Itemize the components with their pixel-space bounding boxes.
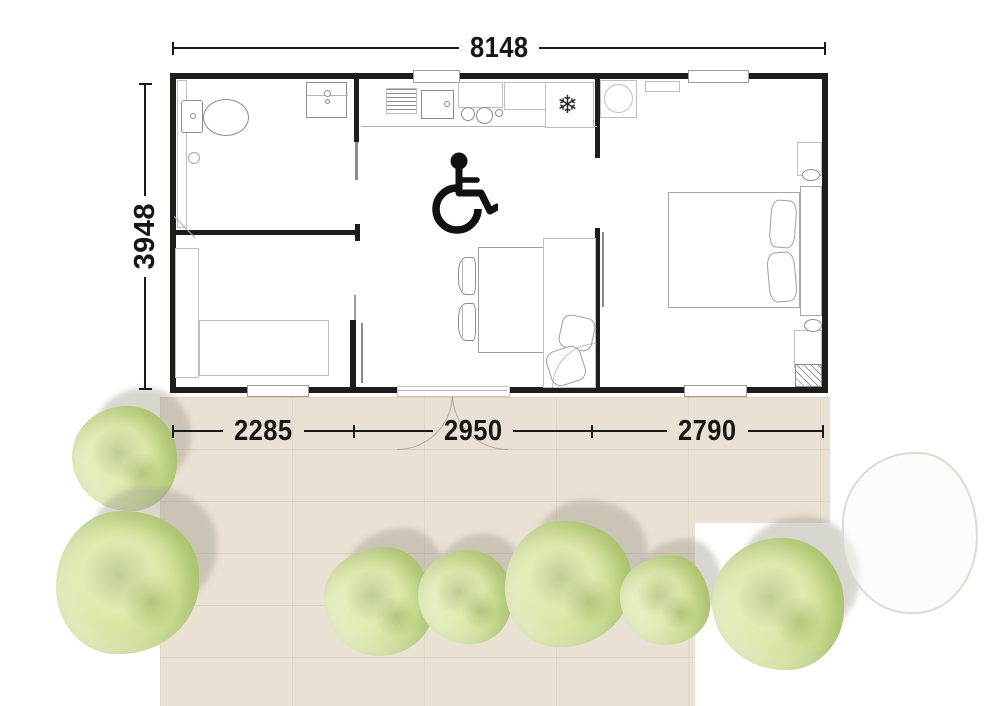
dim-label-segment-2: 2950 — [444, 417, 503, 446]
bedroom1-sliding-door — [602, 232, 604, 307]
wall-bathroom-right — [354, 79, 359, 142]
hob-knob — [495, 109, 503, 117]
bed-pillow-1 — [768, 199, 797, 249]
toilet-paper-holder — [188, 152, 200, 164]
dining-chair-1 — [458, 257, 476, 295]
dim-line — [593, 430, 667, 432]
dim-line — [539, 47, 824, 49]
toilet-flush-button — [190, 113, 196, 119]
wheelchair-icon — [432, 149, 498, 237]
dim-line — [144, 85, 146, 196]
bathroom-sliding-door — [355, 142, 358, 180]
ghost-tree-icon — [842, 452, 978, 614]
water-heater — [604, 84, 633, 113]
hob-burner-2 — [476, 107, 493, 124]
bedroom2-bed-horizontal — [199, 320, 329, 376]
dining-chair-2 — [458, 303, 476, 341]
tree-foliage-shade — [375, 596, 417, 638]
mobile-home-plan: ❄ — [170, 73, 828, 393]
dim-tick — [139, 388, 152, 390]
dimension-segment-2: 2950 — [353, 416, 591, 446]
dining-table — [478, 247, 545, 353]
water-heater-cabinet — [600, 80, 637, 118]
bathroom-vanity — [306, 82, 347, 118]
tree-icon — [418, 544, 518, 644]
dim-line — [174, 430, 223, 432]
wall-right — [822, 73, 828, 393]
tree-icon — [56, 502, 208, 654]
dim-line — [513, 430, 591, 432]
bedroom2-bed-vertical — [175, 248, 199, 378]
wall-bedroom2-right — [350, 320, 356, 387]
dim-label-segment-1: 2285 — [234, 417, 293, 446]
bed-headboard — [800, 186, 822, 316]
dimension-total-width: 8148 — [172, 33, 826, 63]
kitchen-counter-2 — [504, 82, 549, 110]
window-top-kitchen — [413, 70, 460, 83]
hob-burner-1 — [461, 107, 475, 121]
toilet-bowl — [203, 99, 249, 136]
dimension-segment-1: 2285 — [172, 416, 353, 446]
sink-tap — [444, 101, 450, 107]
entrance-door-track — [398, 390, 507, 391]
floor-plan-page: 8148 3948 2285 2950 2790 — [0, 0, 1000, 706]
bedside-rug — [795, 364, 822, 387]
window-top-bedroom — [688, 70, 749, 83]
tree-foliage-shade — [662, 595, 697, 630]
chair-back-line — [462, 307, 463, 337]
tree-foliage-shade — [462, 592, 498, 628]
dimension-total-depth: 3948 — [138, 83, 152, 390]
window-bottom-bedroom2 — [247, 385, 309, 397]
lamp-top — [802, 169, 820, 181]
wall-bathroom-bottom — [176, 230, 358, 235]
snowflake-icon: ❄ — [557, 93, 578, 118]
dim-line — [748, 430, 822, 432]
dim-label-segment-3: 2790 — [678, 417, 737, 446]
tree-icon — [505, 513, 639, 647]
dim-tick — [824, 42, 826, 55]
kitchen-counter-1 — [458, 82, 503, 108]
wall-end-cap — [355, 224, 360, 241]
wall-shelf — [645, 81, 680, 92]
chair-back-line — [462, 261, 463, 291]
nightstand-bottom — [794, 330, 822, 368]
tree-icon — [620, 549, 716, 645]
tree-icon — [712, 530, 852, 670]
tree-foliage-shade — [774, 597, 824, 647]
window-bottom-bedroom1 — [684, 385, 747, 397]
entrance-bay-opening — [397, 386, 510, 397]
kitchen-sink — [421, 90, 454, 119]
vanity-drain — [325, 99, 330, 104]
tree-foliage-shade — [123, 575, 178, 630]
toilet-tank — [181, 100, 203, 133]
dim-line — [174, 47, 459, 49]
dim-tick — [822, 425, 824, 438]
vanity-tap — [324, 90, 331, 97]
bedroom2-door-leaf — [361, 323, 363, 383]
dim-label-total-depth: 3948 — [131, 203, 160, 270]
bed-pillow-2 — [766, 251, 798, 303]
kitchen-drainer — [386, 88, 417, 114]
dim-label-total-width: 8148 — [470, 34, 529, 63]
dim-line — [144, 277, 146, 388]
dim-line — [304, 430, 353, 432]
dimension-segment-3: 2790 — [591, 416, 824, 446]
lamp-bottom — [804, 319, 822, 332]
bedroom2-door-jamb — [354, 295, 356, 320]
dim-line — [355, 430, 433, 432]
